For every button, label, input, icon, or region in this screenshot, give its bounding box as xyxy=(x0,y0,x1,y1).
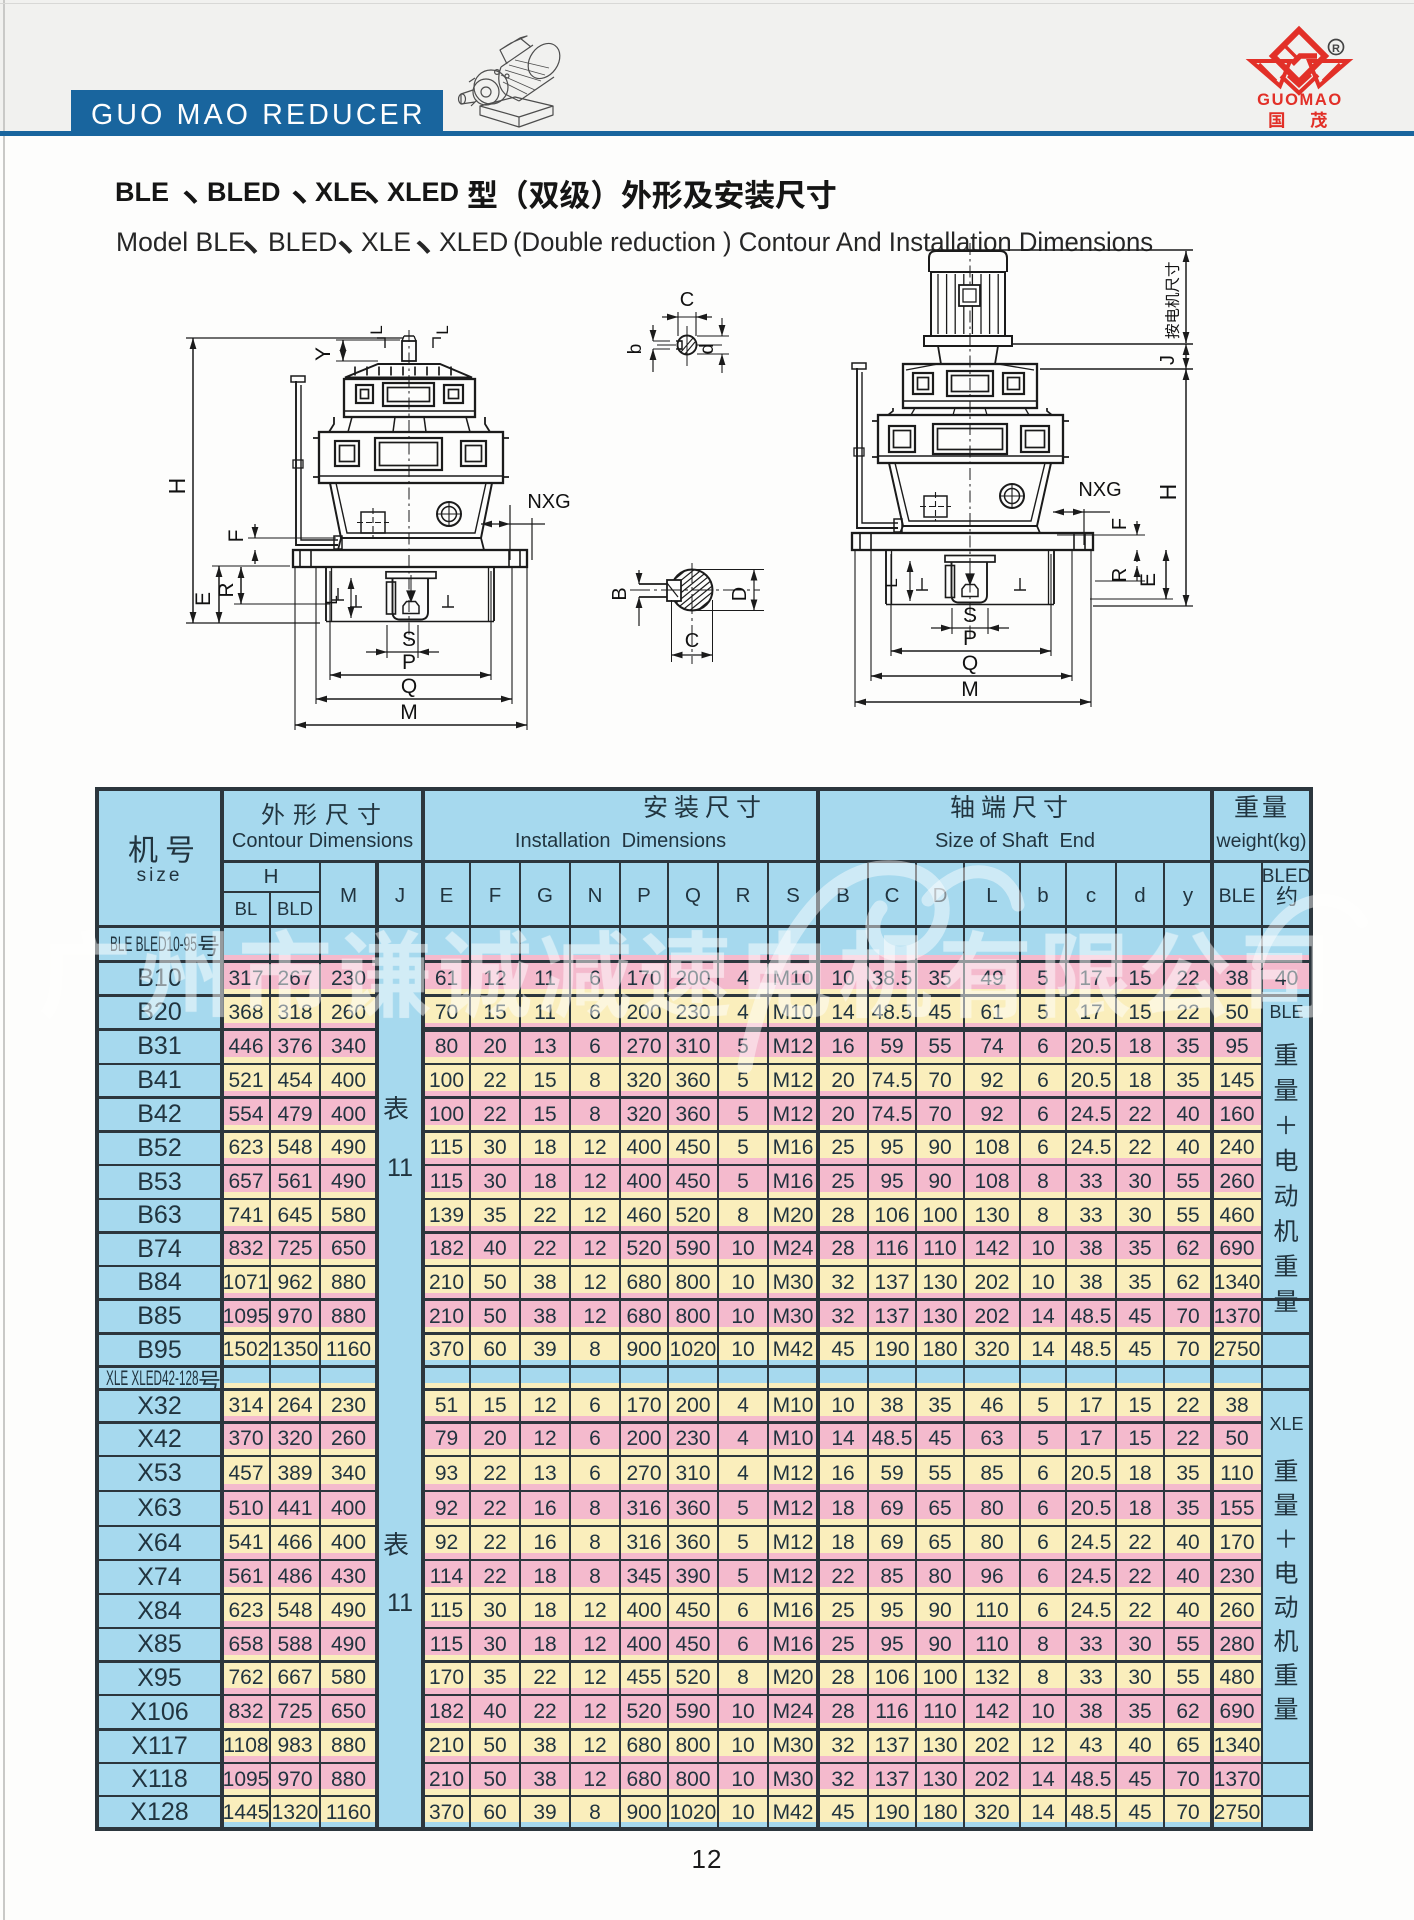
svg-text:R: R xyxy=(215,582,238,597)
svg-text:S: S xyxy=(963,604,977,627)
svg-text:L: L xyxy=(367,325,386,334)
svg-text:L: L xyxy=(433,325,452,334)
svg-text:H: H xyxy=(164,478,190,495)
svg-text:Y: Y xyxy=(312,347,335,361)
svg-text:C: C xyxy=(680,289,694,311)
svg-text:d: d xyxy=(697,344,718,355)
svg-text:E: E xyxy=(1137,573,1160,587)
svg-text:H: H xyxy=(1155,484,1181,501)
svg-text:F: F xyxy=(225,530,248,543)
svg-text:F: F xyxy=(1109,518,1131,530)
svg-text:B: B xyxy=(609,587,631,600)
svg-text:P: P xyxy=(402,651,416,674)
svg-text:b: b xyxy=(625,344,646,355)
svg-text:NXG: NXG xyxy=(527,491,570,513)
svg-text:C: C xyxy=(685,630,699,652)
svg-text:J: J xyxy=(1157,355,1179,365)
svg-text:Q: Q xyxy=(401,675,417,698)
svg-text:S: S xyxy=(402,628,416,651)
svg-text:Q: Q xyxy=(962,652,978,675)
svg-text:M: M xyxy=(961,678,979,701)
svg-text:E: E xyxy=(192,592,215,606)
svg-text:M: M xyxy=(400,701,418,724)
svg-text:D: D xyxy=(729,587,751,601)
svg-text:P: P xyxy=(963,627,977,650)
svg-text:NXG: NXG xyxy=(1078,479,1121,501)
svg-text:R: R xyxy=(1109,568,1131,582)
